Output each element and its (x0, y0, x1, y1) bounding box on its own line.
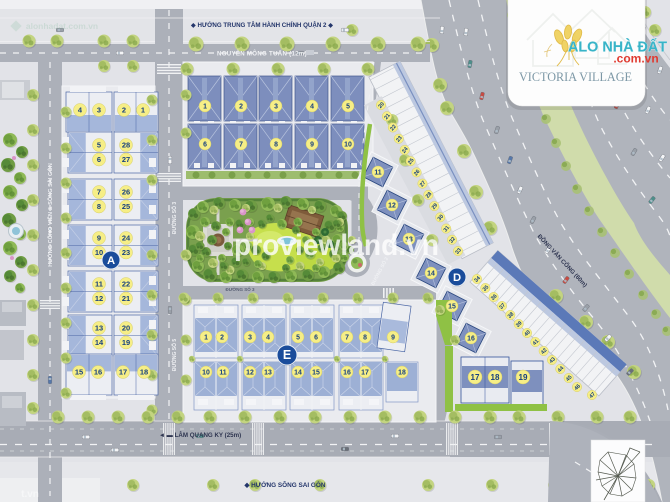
svg-text:17: 17 (471, 373, 480, 382)
svg-text:10: 10 (344, 141, 352, 148)
svg-text:5: 5 (346, 103, 350, 110)
svg-text:◆ HƯỚNG TRUNG TÂM HÀNH CHÍNH Q: ◆ HƯỚNG TRUNG TÂM HÀNH CHÍNH QUẬN 2 ◆ (190, 21, 333, 29)
svg-text:15: 15 (448, 303, 456, 310)
svg-text:7: 7 (239, 141, 243, 148)
svg-text:19: 19 (122, 338, 130, 347)
svg-text:15: 15 (75, 368, 83, 377)
svg-text:14: 14 (95, 338, 104, 347)
svg-text:18: 18 (398, 369, 406, 376)
svg-text:13: 13 (95, 324, 103, 333)
svg-text:11: 11 (95, 280, 103, 289)
svg-text:9: 9 (391, 334, 395, 341)
svg-text:15: 15 (312, 369, 320, 376)
svg-text:18: 18 (491, 373, 500, 382)
svg-text:6: 6 (97, 155, 101, 164)
svg-text:2: 2 (220, 334, 224, 341)
svg-text:14: 14 (294, 369, 302, 376)
svg-text:19: 19 (519, 373, 528, 382)
svg-text:ĐƯỜNG SỐ 3: ĐƯỜNG SỐ 3 (225, 285, 255, 292)
svg-text:8: 8 (274, 141, 278, 148)
svg-text:23: 23 (122, 248, 130, 257)
svg-text:28: 28 (122, 141, 130, 150)
svg-text:14: 14 (427, 270, 435, 277)
svg-text:1: 1 (203, 103, 207, 110)
svg-text:16: 16 (94, 368, 102, 377)
svg-text:8: 8 (97, 202, 101, 211)
svg-text:17: 17 (119, 368, 127, 377)
svg-text:alonhadat.com.vn: alonhadat.com.vn (26, 21, 98, 31)
svg-text:◄ ▬ LÂM QUANG KY (25m): ◄ ▬ LÂM QUANG KY (25m) (159, 432, 241, 439)
svg-text:27: 27 (122, 155, 130, 164)
svg-text:ĐƯỜNG SỐ 3: ĐƯỜNG SỐ 3 (170, 202, 178, 235)
svg-text:7: 7 (97, 188, 101, 197)
svg-text:2: 2 (239, 103, 243, 110)
svg-text:21: 21 (122, 294, 130, 303)
svg-text:2: 2 (122, 106, 126, 115)
svg-text:ĐƯỜNG SỐ 5: ĐƯỜNG SỐ 5 (170, 339, 178, 372)
svg-text:12: 12 (246, 369, 254, 376)
svg-text:E: E (283, 348, 291, 362)
svg-text:1: 1 (141, 106, 145, 115)
svg-text:12: 12 (95, 294, 103, 303)
svg-text:22: 22 (122, 280, 130, 289)
svg-text:10: 10 (202, 369, 210, 376)
svg-text:11: 11 (219, 369, 226, 376)
svg-text:A: A (107, 255, 115, 267)
svg-text:16: 16 (467, 335, 475, 342)
svg-text:17: 17 (361, 369, 369, 376)
svg-text:13: 13 (264, 369, 272, 376)
svg-text:24: 24 (122, 234, 131, 243)
svg-text:20: 20 (122, 324, 130, 333)
svg-text:25: 25 (122, 202, 130, 211)
svg-text:6: 6 (314, 334, 318, 341)
svg-text:VІCTORІA VІLLAGE: VІCTORІA VІLLAGE (519, 70, 632, 84)
svg-text:9: 9 (310, 141, 314, 148)
svg-text:8: 8 (363, 334, 367, 341)
svg-text:NGUYỄN MÔNG TUẤN (12m): NGUYỄN MÔNG TUẤN (12m) (217, 50, 307, 58)
svg-text:.com.vn: .com.vn (613, 52, 658, 66)
svg-text:t.vn: t.vn (21, 489, 39, 500)
svg-text:3: 3 (248, 334, 252, 341)
svg-text:16: 16 (343, 369, 351, 376)
svg-text:26: 26 (122, 188, 130, 197)
svg-text:proviewland.vn: proviewland.vn (234, 229, 439, 262)
svg-text:9: 9 (97, 234, 101, 243)
svg-text:6: 6 (203, 141, 207, 148)
svg-text:5: 5 (296, 334, 300, 341)
svg-text:12: 12 (388, 202, 396, 209)
svg-text:18: 18 (140, 368, 148, 377)
svg-text:7: 7 (345, 334, 349, 341)
svg-text:3: 3 (97, 106, 101, 115)
svg-text:3: 3 (274, 103, 278, 110)
svg-text:HƯỚNG CÔNG VIÊN & SÔNG SÀI GÒN: HƯỚNG CÔNG VIÊN & SÔNG SÀI GÒN (46, 163, 54, 267)
svg-text:D: D (453, 272, 461, 284)
svg-text:4: 4 (266, 334, 270, 341)
svg-text:11: 11 (374, 169, 381, 176)
svg-text:◆ HƯỚNG SÔNG SAI GÒN: ◆ HƯỚNG SÔNG SAI GÒN (243, 480, 325, 489)
svg-text:10: 10 (95, 248, 103, 257)
svg-text:4: 4 (310, 103, 314, 110)
svg-text:1: 1 (204, 334, 208, 341)
svg-text:5: 5 (97, 141, 101, 150)
